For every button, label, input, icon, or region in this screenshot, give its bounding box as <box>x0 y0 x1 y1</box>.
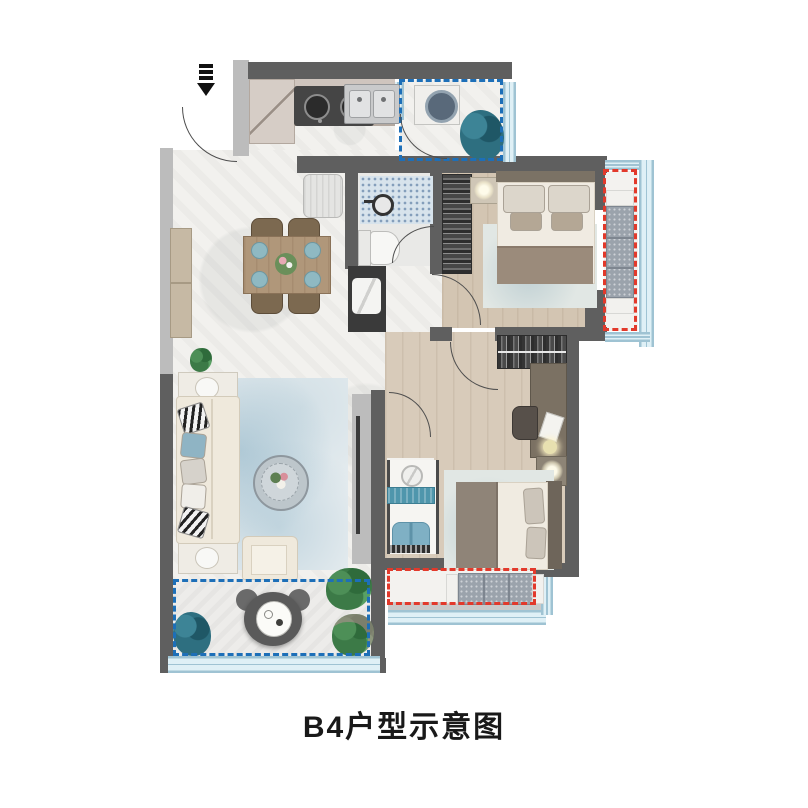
sofa <box>176 396 240 544</box>
sink-faucet <box>381 97 386 102</box>
floor-plan <box>0 0 808 808</box>
bedroom2-bay-outline <box>387 568 536 605</box>
floor-plan-canvas: B4户型示意图 <box>0 0 808 808</box>
left-exterior-wall-lower <box>160 374 173 673</box>
bedroom2-desk-chair <box>512 406 538 440</box>
master-pillow <box>503 185 545 213</box>
bedroom2-top-wall-stub <box>430 327 452 341</box>
master-nightstand <box>470 177 498 204</box>
bedroom2-pillow <box>523 487 545 524</box>
bedroom2-headboard <box>546 481 562 569</box>
sofa-seat-line <box>211 399 213 539</box>
master-wardrobe <box>442 174 472 274</box>
master-bay-window-glass <box>639 160 654 347</box>
bathroom-left-wall <box>345 156 358 269</box>
sink-basin <box>373 90 395 118</box>
zebra-pillow <box>176 401 210 435</box>
study-runner <box>387 487 435 504</box>
sideboard <box>170 228 192 338</box>
zebra-pillow <box>177 506 210 539</box>
coffee-table <box>253 455 309 511</box>
shower-arm <box>364 200 374 203</box>
top-wall <box>248 62 512 79</box>
armchair <box>242 536 298 580</box>
place-setting <box>251 242 268 259</box>
table-centerpiece <box>275 253 297 275</box>
master-accent-pillow <box>510 212 542 231</box>
entry-arrow-icon <box>197 64 215 100</box>
master-bay-outline <box>603 169 637 331</box>
study-desk-edge <box>390 545 430 553</box>
place-setting <box>304 271 321 288</box>
entry-arrow-bar <box>199 70 213 74</box>
platform-right-window <box>503 82 516 162</box>
balcony-window-glass <box>168 656 380 673</box>
balcony-outline <box>173 579 370 656</box>
master-headboard <box>496 171 595 182</box>
sofa-pillow <box>180 432 207 459</box>
bedroom2-bay-glass <box>388 610 546 625</box>
side-table-tray <box>195 547 219 569</box>
stove-burner <box>304 94 330 120</box>
refrigerator <box>303 174 343 218</box>
bedroom2-pillow <box>525 526 547 559</box>
master-bed <box>496 171 595 283</box>
desk-lamp <box>543 440 557 454</box>
side-table <box>178 542 238 574</box>
bedroom2-bed <box>456 481 564 569</box>
sink-basin <box>349 90 371 118</box>
tv-console <box>356 416 360 534</box>
study-chair <box>392 522 430 546</box>
place-setting <box>251 271 268 288</box>
master-lamp-glow <box>474 180 494 200</box>
bedroom2-blanket <box>456 482 498 568</box>
dining-table <box>243 236 331 294</box>
sofa-pillow <box>180 458 208 486</box>
place-setting <box>304 242 321 259</box>
stove-knob <box>318 119 322 123</box>
tv-wall <box>352 394 371 564</box>
bedroom2-right-wall <box>565 341 579 577</box>
master-blanket <box>497 246 593 284</box>
plan-title: B4户型示意图 <box>0 702 808 746</box>
armchair-seat <box>251 545 287 575</box>
wash-basin <box>352 278 381 314</box>
master-pillow <box>548 185 590 213</box>
kitchen-corner-cabinet <box>249 79 295 144</box>
shower-head <box>372 194 394 216</box>
sink-faucet <box>357 97 362 102</box>
entry-arrow-head <box>197 83 215 96</box>
kitchen-sink <box>344 84 400 124</box>
master-accent-pillow <box>551 212 583 231</box>
entry-arrow-bar <box>199 76 213 80</box>
desk-notepad <box>538 412 564 443</box>
coffee-table-decor <box>269 469 291 491</box>
entry-arrow-bar <box>199 64 213 68</box>
master-bay-bottom-glass <box>605 332 650 342</box>
study-unit <box>387 460 439 554</box>
study-lamp <box>401 465 423 487</box>
